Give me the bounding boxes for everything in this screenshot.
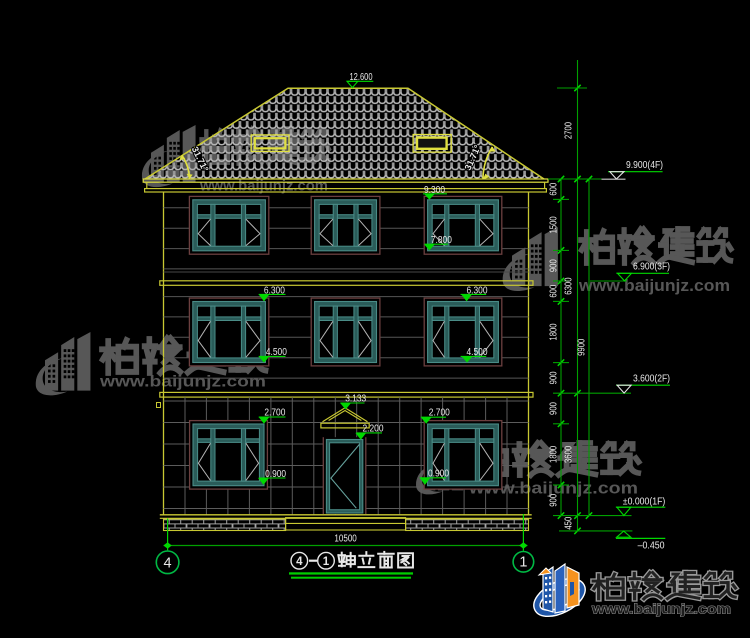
svg-text:±0.000(1F): ±0.000(1F) — [623, 497, 666, 508]
svg-text:9900: 9900 — [576, 339, 588, 356]
svg-text:1800: 1800 — [548, 323, 560, 340]
svg-text:6.900(3F): 6.900(3F) — [633, 262, 670, 273]
svg-text:900: 900 — [548, 259, 560, 272]
svg-text:3600: 3600 — [563, 446, 575, 463]
svg-text:‒0.450: ‒0.450 — [638, 541, 665, 552]
svg-text:900: 900 — [548, 402, 560, 415]
svg-text:9.900(4F): 9.900(4F) — [626, 160, 663, 171]
svg-text:1: 1 — [519, 555, 527, 571]
svg-text:www.baijunjz.com: www.baijunjz.com — [578, 276, 730, 295]
svg-text:www.baijunjz.com: www.baijunjz.com — [99, 374, 266, 391]
svg-text:1500: 1500 — [548, 216, 560, 233]
svg-text:900: 900 — [548, 371, 560, 384]
svg-text:3.600(2F): 3.600(2F) — [633, 374, 670, 385]
svg-text:900: 900 — [548, 494, 560, 507]
svg-text:450: 450 — [563, 517, 575, 530]
svg-text:600: 600 — [548, 285, 560, 298]
svg-text:2700: 2700 — [563, 122, 575, 139]
svg-text:4: 4 — [164, 555, 172, 571]
svg-text:4: 4 — [296, 556, 303, 568]
svg-text:www.baijunjz.com: www.baijunjz.com — [591, 602, 731, 617]
svg-text:1: 1 — [323, 556, 330, 568]
svg-text:6300: 6300 — [563, 277, 575, 294]
svg-text:600: 600 — [548, 183, 560, 196]
svg-text:1800: 1800 — [548, 446, 560, 463]
svg-text:10500: 10500 — [334, 533, 357, 544]
